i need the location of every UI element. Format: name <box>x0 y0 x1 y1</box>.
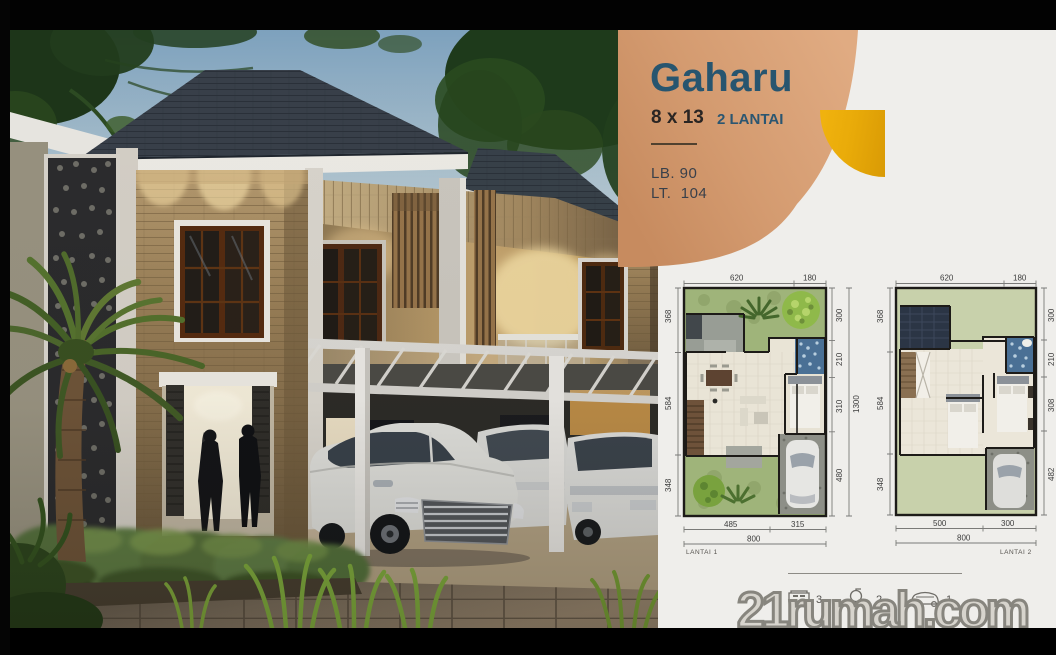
svg-text:800: 800 <box>957 534 971 543</box>
svg-text:584: 584 <box>876 396 885 410</box>
svg-text:368: 368 <box>876 309 885 323</box>
svg-text:500: 500 <box>933 519 947 528</box>
svg-text:LANTAI 2: LANTAI 2 <box>1000 549 1032 556</box>
svg-text:310: 310 <box>835 399 844 413</box>
svg-text:620: 620 <box>940 274 954 283</box>
svg-text:300: 300 <box>1001 519 1015 528</box>
svg-text:485: 485 <box>724 520 738 529</box>
svg-text:210: 210 <box>1047 352 1056 366</box>
svg-text:308: 308 <box>1047 398 1056 412</box>
svg-text:300: 300 <box>1047 308 1056 322</box>
svg-text:210: 210 <box>835 352 844 366</box>
svg-text:800: 800 <box>747 535 761 544</box>
svg-text:368: 368 <box>664 309 673 323</box>
svg-text:LANTAI 1: LANTAI 1 <box>686 549 718 556</box>
svg-text:584: 584 <box>664 396 673 410</box>
svg-text:1300: 1300 <box>852 395 861 413</box>
svg-text:180: 180 <box>803 274 817 283</box>
svg-text:300: 300 <box>835 308 844 322</box>
svg-text:480: 480 <box>835 468 844 482</box>
svg-text:315: 315 <box>791 520 805 529</box>
svg-text:348: 348 <box>876 477 885 491</box>
svg-text:348: 348 <box>664 478 673 492</box>
svg-text:482: 482 <box>1047 467 1056 481</box>
svg-text:620: 620 <box>730 274 744 283</box>
svg-text:180: 180 <box>1013 274 1027 283</box>
